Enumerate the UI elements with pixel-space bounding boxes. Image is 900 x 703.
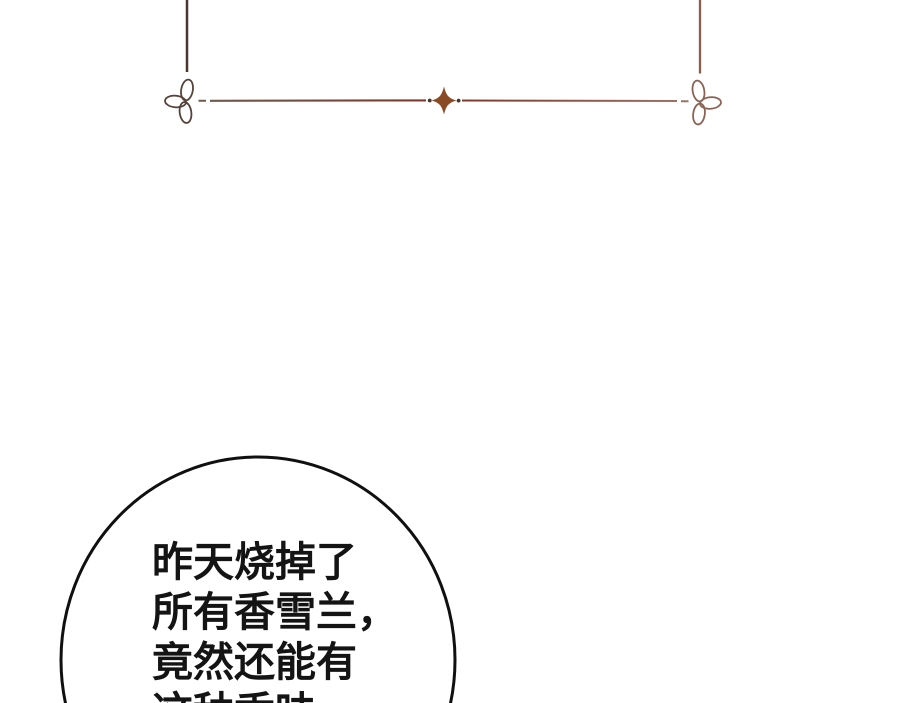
comic-panel: 昨天烧掉了 所有香雪兰， 竟然还能有 这种香味: [0, 0, 900, 703]
speech-line-4-clipped: 这种香味: [152, 687, 398, 703]
speech-line-1: 昨天烧掉了: [152, 537, 398, 587]
flourish-clover-left-icon: [165, 79, 195, 124]
divider-dot-right-icon: [457, 99, 461, 103]
divider-line-right: [462, 101, 677, 102]
panel-artwork: [0, 0, 900, 703]
four-point-star-icon: [432, 87, 457, 115]
flourish-clover-right-icon: [691, 80, 722, 126]
speech-line-3: 竟然还能有: [152, 637, 398, 687]
divider-dot-left-icon: [428, 99, 432, 103]
speech-bubble-text: 昨天烧掉了 所有香雪兰， 竟然还能有 这种香味: [152, 537, 398, 703]
speech-line-2: 所有香雪兰，: [152, 587, 398, 637]
